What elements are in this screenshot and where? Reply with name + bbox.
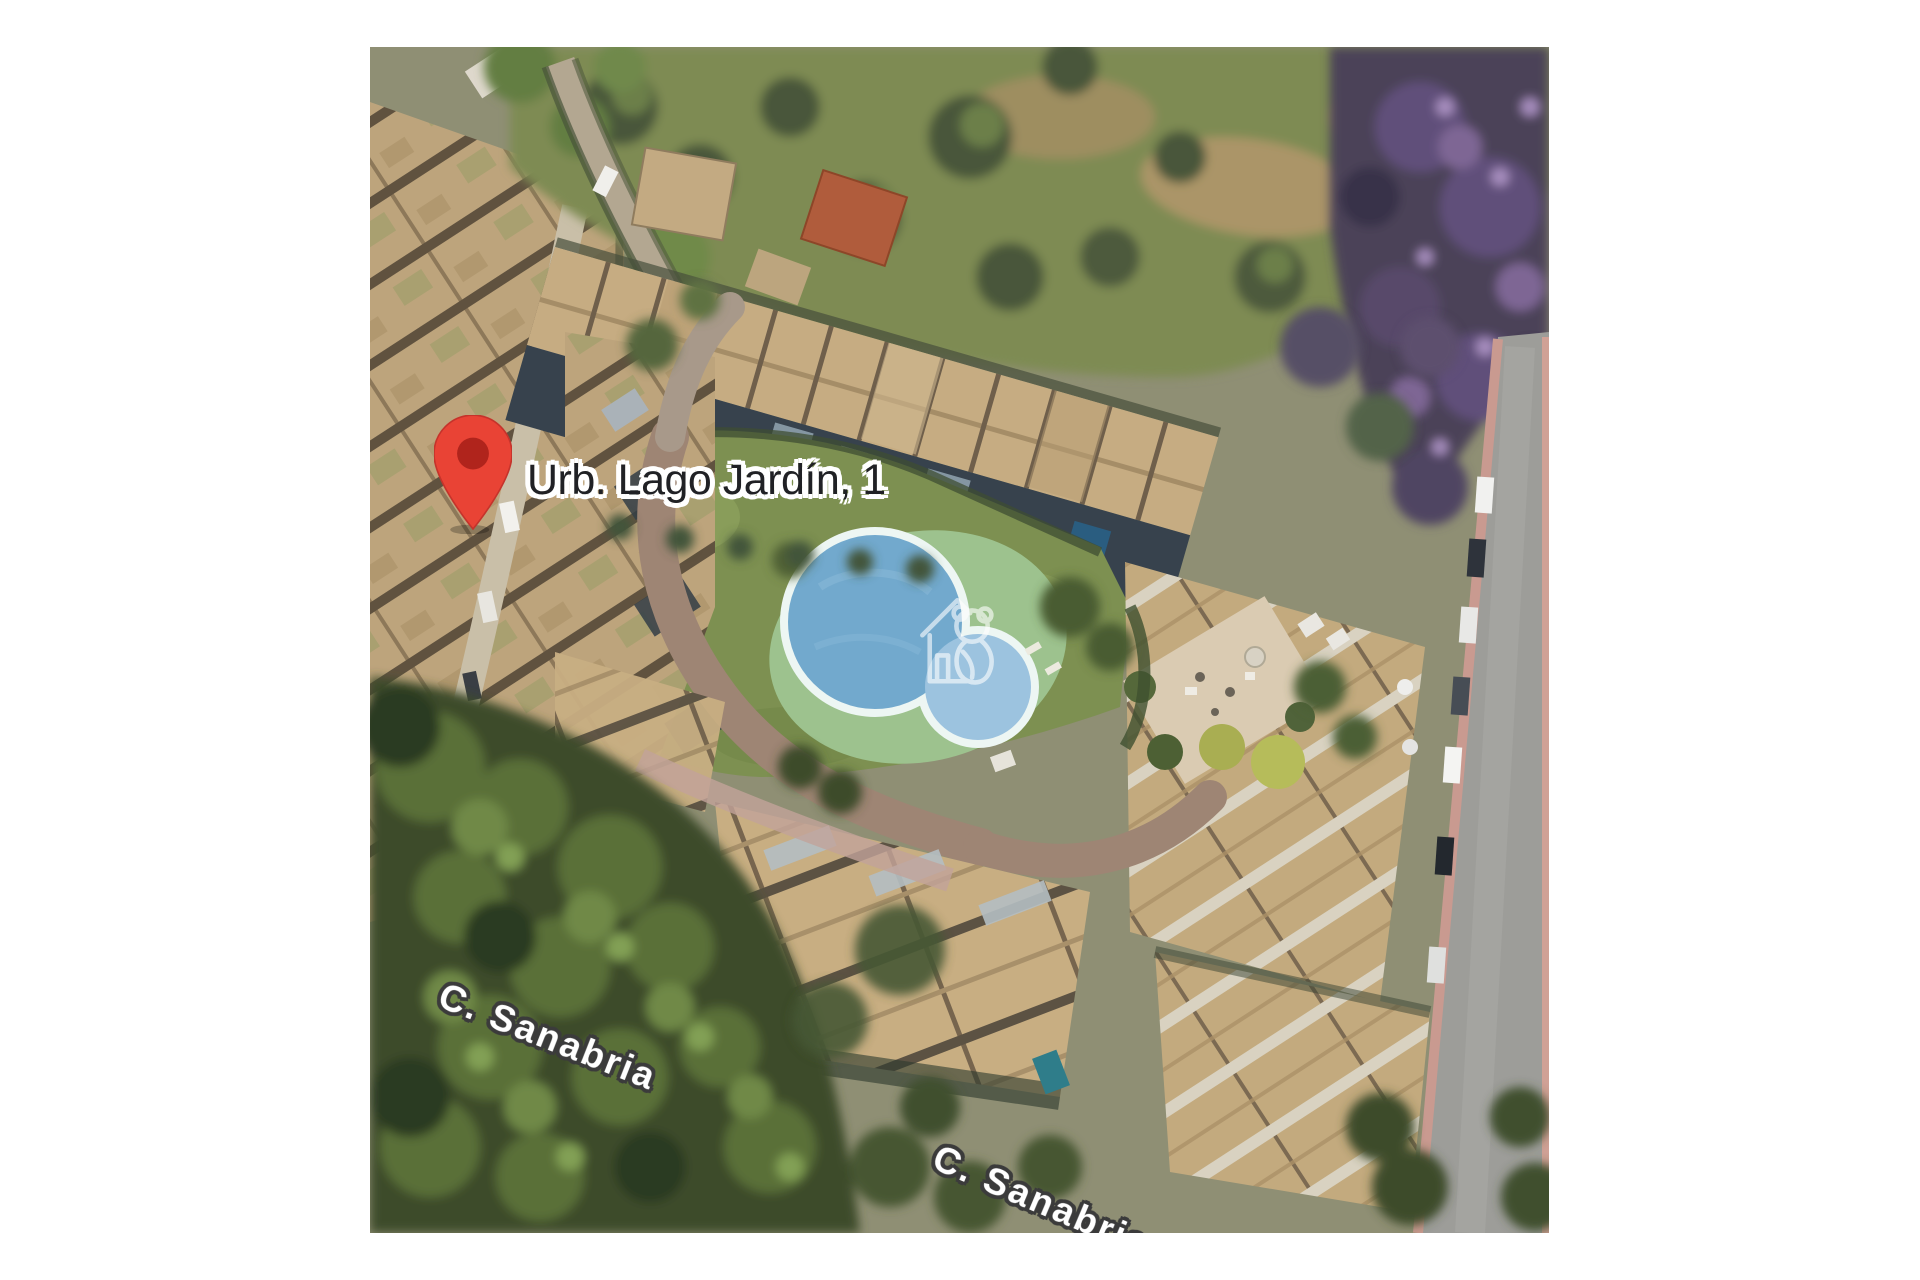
pin-address-label: Urb. Lago Jardín, 1 [527,456,886,504]
location-pin[interactable] [434,415,512,534]
house-watermark-icon [915,584,1007,692]
page: Urb. Lago Jardín, 1 C. Sanabria C. Sanab… [0,0,1920,1280]
map-pin-icon [434,415,512,534]
map-canvas[interactable]: Urb. Lago Jardín, 1 C. Sanabria C. Sanab… [370,47,1549,1233]
